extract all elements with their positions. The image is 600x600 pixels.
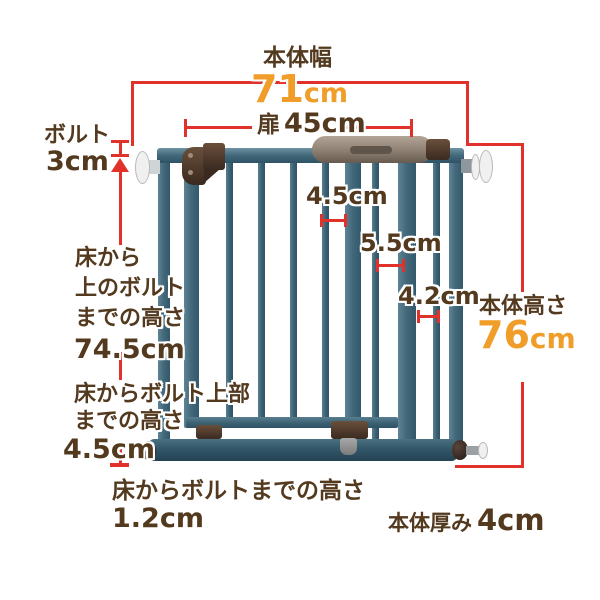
dim-width-left [131, 81, 134, 146]
body-height-value: 76cm [477, 316, 576, 356]
dim-gap3-line [419, 315, 439, 318]
body-height-number: 76 [477, 313, 530, 357]
floor-upper-bolt-line3: までの高さ [75, 307, 185, 330]
bolt-bottom-right-flange [478, 442, 488, 459]
door-width-value: 45cm [284, 108, 366, 139]
hinge-wedge [204, 169, 220, 183]
floor-bolt-top-value: 4.5cm [63, 436, 155, 464]
floor-upper-bolt-value: 74.5cm [74, 336, 185, 364]
bolt-top-right-flange [479, 150, 493, 183]
body-thickness-label: 本体厚み [388, 511, 472, 535]
dim-door-line-left [184, 126, 252, 129]
dim-gap2-tick [402, 259, 405, 272]
dim-left-vertical-1 [119, 172, 122, 245]
body-width-value: 71cm [251, 70, 348, 110]
bolt-label: ボルト [44, 124, 110, 147]
body-width-unit: cm [304, 78, 348, 109]
hinge-block [203, 143, 225, 170]
gate-bar [258, 163, 265, 419]
door-width-prefix: 扉 [257, 112, 280, 138]
floor-bolt-top-line2: までの高さ [74, 410, 184, 433]
body-height-unit: cm [530, 322, 576, 355]
dim-door-tick-right [410, 119, 413, 137]
dim-connector [466, 143, 524, 146]
hinge-screw [188, 170, 193, 175]
dim-gap2-tick [376, 259, 379, 272]
bar-gap2-value: 5.5cm [360, 231, 442, 256]
bolt-value: 3cm [46, 148, 109, 176]
product-dimension-diagram: 本体幅 71cm 扉45cm ボルト 3cm 床から 上のボルト までの高さ 7… [0, 0, 600, 600]
gate-bottom-rail [149, 439, 457, 461]
dim-gap1-line [322, 219, 345, 222]
hinge-screw [188, 153, 193, 158]
floor-upper-bolt-line1: 床から [75, 247, 141, 270]
dim-height-bottom [521, 382, 524, 468]
dim-gap2-line [378, 264, 404, 267]
dim-gap3-tick [417, 310, 420, 323]
body-thickness: 本体厚み4cm [388, 505, 545, 535]
latch-bottom-bracket [331, 421, 368, 439]
gate-bar [290, 163, 297, 419]
latch-foot [340, 438, 357, 455]
dim-up-arrow [111, 158, 129, 172]
floor-bolt-value: 1.2cm [112, 505, 204, 533]
bar-gap3-value: 4.2cm [398, 284, 480, 309]
dim-width-right [466, 81, 469, 145]
floor-bolt-top-line1: 床からボルト上部 [74, 383, 250, 406]
body-width-number: 71 [251, 67, 304, 111]
dim-height-top [521, 143, 524, 292]
dim-gap1-tick [344, 214, 347, 227]
floor-upper-bolt-line2: 上のボルト [75, 277, 185, 300]
bar-gap1-value: 4.5cm [306, 184, 388, 209]
dim-gap3-tick [437, 310, 440, 323]
hinge-bottom-cap [196, 425, 222, 439]
body-thickness-value: 4cm [477, 503, 545, 537]
door-width-dimension: 扉45cm [257, 110, 366, 138]
handle-slot [350, 146, 392, 154]
floor-bolt-line1: 床からボルトまでの高さ [112, 479, 365, 503]
gate-bar [226, 163, 233, 419]
bolt-top-left-flange [135, 151, 150, 184]
dim-height-foot [455, 465, 524, 468]
handle-clip [426, 139, 450, 160]
dim-gap1-tick [320, 214, 323, 227]
dim-bolt-tick-bottom [111, 154, 129, 157]
